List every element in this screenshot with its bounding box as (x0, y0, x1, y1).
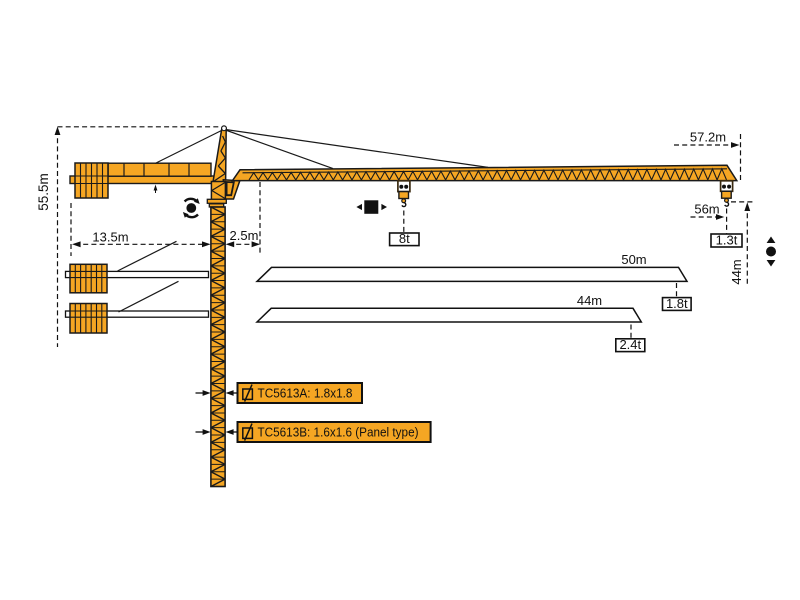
svg-text:57.2m: 57.2m (690, 130, 726, 145)
svg-text:55.5m: 55.5m (36, 173, 51, 211)
svg-text:TC5613B: 1.6x1.6 (Panel type): TC5613B: 1.6x1.6 (Panel type) (258, 425, 419, 440)
svg-text:1.3t: 1.3t (716, 232, 738, 247)
svg-text:13.5m: 13.5m (92, 230, 128, 245)
svg-text:1.8t: 1.8t (666, 296, 688, 311)
svg-text:56m: 56m (694, 202, 719, 217)
svg-text:44m: 44m (577, 293, 602, 308)
svg-text:TC5613A: 1.8x1.8: TC5613A: 1.8x1.8 (258, 386, 353, 401)
svg-text:2.5m: 2.5m (230, 228, 259, 243)
svg-text:8t: 8t (399, 231, 410, 246)
svg-text:50m: 50m (621, 252, 646, 267)
svg-text:44m: 44m (729, 259, 744, 284)
svg-text:2.4t: 2.4t (619, 337, 641, 352)
